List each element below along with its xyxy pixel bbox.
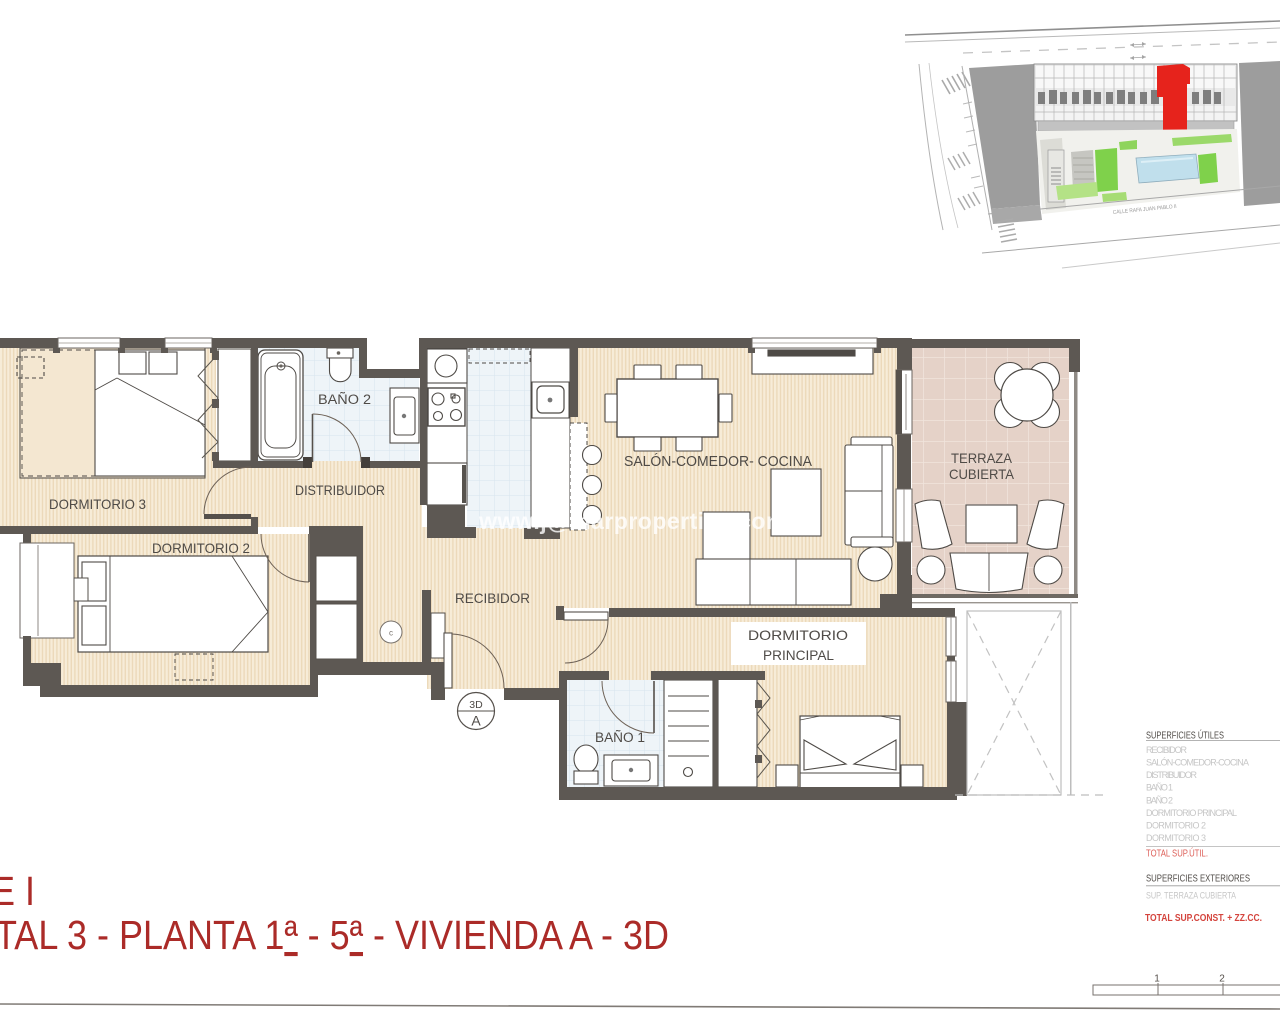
svg-text:3D: 3D	[469, 699, 483, 711]
svg-text:E I: E I	[0, 868, 35, 914]
svg-text:DORMITORIO 3: DORMITORIO 3	[49, 496, 146, 512]
svg-text:SALÓN-COMEDOR- COCINA: SALÓN-COMEDOR- COCINA	[624, 453, 812, 470]
svg-text:BAÑO 2: BAÑO 2	[1146, 795, 1173, 805]
svg-text:www.j@marproperties.com: www.j@marproperties.com	[478, 508, 787, 534]
svg-text:A: A	[471, 713, 481, 729]
svg-text:SUPERFICIES EXTERIORES: SUPERFICIES EXTERIORES	[1146, 873, 1250, 884]
svg-text:BAÑO 2: BAÑO 2	[318, 392, 371, 407]
svg-text:TOTAL SUP.CONST. + ZZ.CC.: TOTAL SUP.CONST. + ZZ.CC.	[1145, 912, 1262, 924]
svg-text:DISTRIBUIDOR: DISTRIBUIDOR	[1146, 770, 1198, 780]
svg-text:CUBIERTA: CUBIERTA	[949, 466, 1015, 482]
svg-text:SUP. TERRAZA CUBIERTA: SUP. TERRAZA CUBIERTA	[1146, 891, 1236, 901]
svg-text:SUPERFICIES ÚTILES: SUPERFICIES ÚTILES	[1146, 729, 1224, 742]
svg-text:SALÓN-COMEDOR-COCINA: SALÓN-COMEDOR-COCINA	[1146, 758, 1249, 768]
svg-text:TAL 3 - PLANTA 1ª - 5ª - VIVIE: TAL 3 - PLANTA 1ª - 5ª - VIVIENDA A - 3D	[0, 912, 669, 958]
svg-text:2: 2	[1219, 974, 1225, 985]
svg-text:RECIBIDOR: RECIBIDOR	[1146, 745, 1188, 755]
svg-text:RECIBIDOR: RECIBIDOR	[455, 590, 530, 606]
svg-text:c: c	[389, 629, 393, 638]
svg-text:BAÑO 1: BAÑO 1	[1146, 783, 1173, 793]
svg-text:TOTAL SUP.ÚTIL.: TOTAL SUP.ÚTIL.	[1146, 846, 1208, 859]
svg-text:DORMITORIO PRINCIPAL: DORMITORIO PRINCIPAL	[1146, 808, 1237, 818]
svg-text:PRINCIPAL: PRINCIPAL	[763, 647, 834, 663]
svg-text:DORMITORIO 2: DORMITORIO 2	[152, 540, 250, 556]
svg-text:BAÑO 1: BAÑO 1	[595, 730, 645, 745]
svg-text:TERRAZA: TERRAZA	[951, 450, 1013, 466]
svg-text:1: 1	[1154, 974, 1160, 985]
svg-text:DISTRIBUIDOR: DISTRIBUIDOR	[295, 483, 385, 498]
svg-text:DORMITORIO 2: DORMITORIO 2	[1146, 820, 1206, 830]
svg-text:DORMITORIO 3: DORMITORIO 3	[1146, 833, 1206, 843]
svg-text:DORMITORIO: DORMITORIO	[748, 627, 848, 643]
